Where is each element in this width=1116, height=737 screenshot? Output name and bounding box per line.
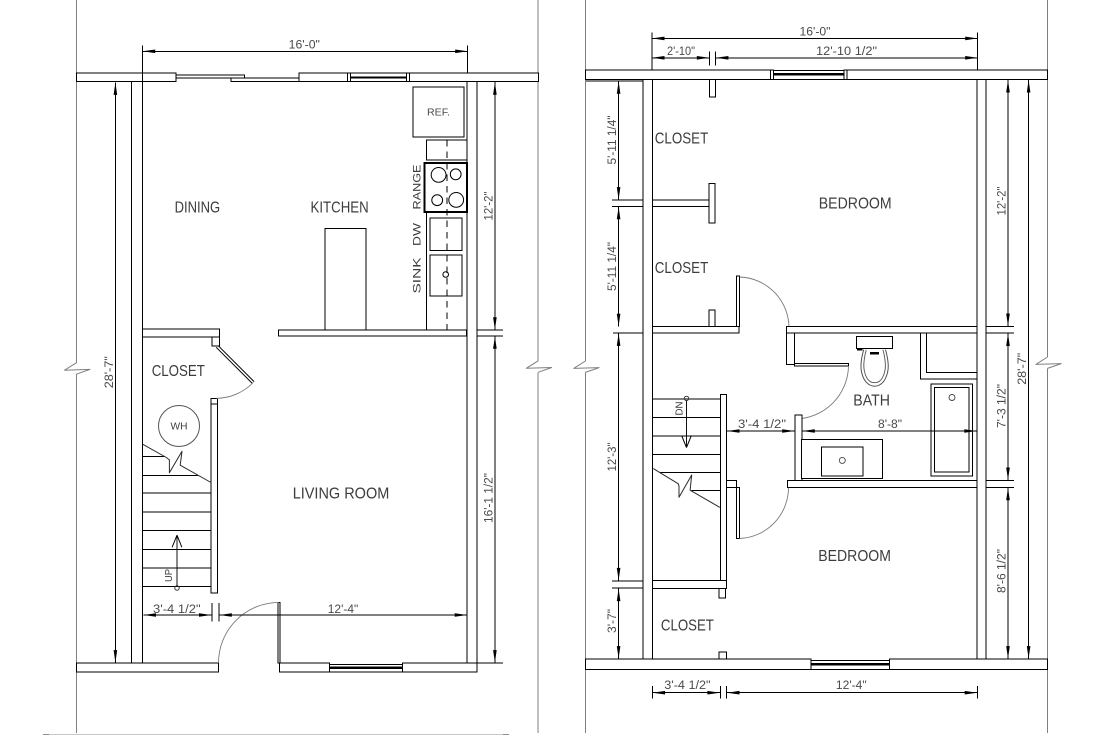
svg-text:28'-7": 28'-7" [1017,353,1029,385]
svg-text:DINING: DINING [175,199,221,216]
svg-text:2'-10": 2'-10" [667,46,695,58]
svg-text:12'-4": 12'-4" [836,680,867,692]
svg-text:3'-4 1/2": 3'-4 1/2" [738,419,786,431]
svg-text:7'-3 1/2": 7'-3 1/2" [996,384,1008,428]
svg-text:BATH: BATH [853,392,890,409]
svg-text:DN: DN [674,402,686,416]
svg-text:CLOSET: CLOSET [655,260,709,277]
svg-text:LIVING ROOM: LIVING ROOM [293,486,390,503]
svg-text:UP: UP [163,569,175,582]
svg-text:CLOSET: CLOSET [655,131,709,148]
svg-text:5'-11 1/4": 5'-11 1/4" [607,242,619,291]
svg-text:12'-2": 12'-2" [483,192,495,221]
svg-text:RANGE: RANGE [412,165,424,210]
svg-text:REF.: REF. [427,107,450,119]
svg-text:3'-4 1/2": 3'-4 1/2" [664,680,710,692]
svg-text:28'-7": 28'-7" [104,356,116,388]
svg-text:3'-4 1/2": 3'-4 1/2" [153,604,201,616]
svg-text:12'-2": 12'-2" [996,187,1008,216]
svg-text:DW: DW [412,222,424,246]
svg-text:5'-11 1/4": 5'-11 1/4" [607,116,619,165]
svg-text:WH: WH [171,422,188,433]
svg-text:8'-8": 8'-8" [878,419,902,431]
svg-text:12'-3": 12'-3" [607,443,619,472]
svg-text:3'-7": 3'-7" [607,609,619,633]
svg-text:CLOSET: CLOSET [152,363,206,380]
svg-text:16'-0": 16'-0" [800,27,831,39]
svg-text:16'-0": 16'-0" [289,40,320,52]
svg-text:BEDROOM: BEDROOM [819,195,892,212]
svg-text:16'-1 1/2": 16'-1 1/2" [483,473,495,523]
svg-text:BEDROOM: BEDROOM [818,548,891,565]
svg-text:CLOSET: CLOSET [661,617,714,634]
svg-text:12'-4": 12'-4" [328,604,359,616]
svg-text:KITCHEN: KITCHEN [311,199,369,216]
svg-text:8'-6 1/2": 8'-6 1/2" [996,549,1008,593]
svg-text:SINK: SINK [412,257,424,294]
svg-text:12'-10 1/2": 12'-10 1/2" [816,46,877,58]
